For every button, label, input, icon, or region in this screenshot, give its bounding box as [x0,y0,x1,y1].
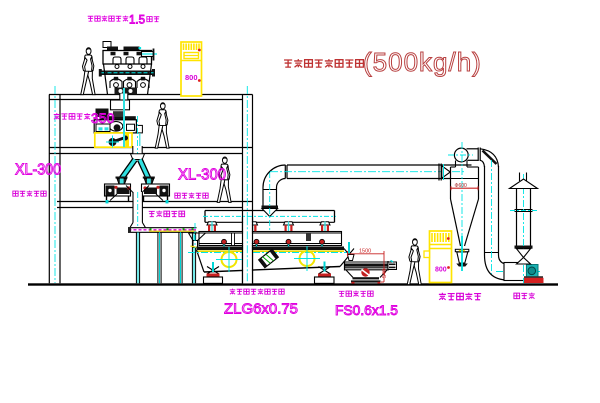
svg-text:1.5: 1.5 [129,15,145,27]
svg-text:FS0.6x1.5: FS0.6x1.5 [335,302,398,318]
svg-text:800: 800 [435,267,447,274]
svg-text:1500: 1500 [359,249,371,255]
svg-text:(500kg/h): (500kg/h) [363,47,482,77]
svg-text:XL-300: XL-300 [15,162,61,179]
svg-text:350: 350 [91,110,115,126]
svg-text:Φ600: Φ600 [455,183,468,189]
svg-text:ZLG6x0.75: ZLG6x0.75 [224,301,298,318]
svg-text:800: 800 [185,73,198,82]
svg-text:540: 540 [382,269,388,278]
svg-text:XL-300: XL-300 [178,167,226,184]
